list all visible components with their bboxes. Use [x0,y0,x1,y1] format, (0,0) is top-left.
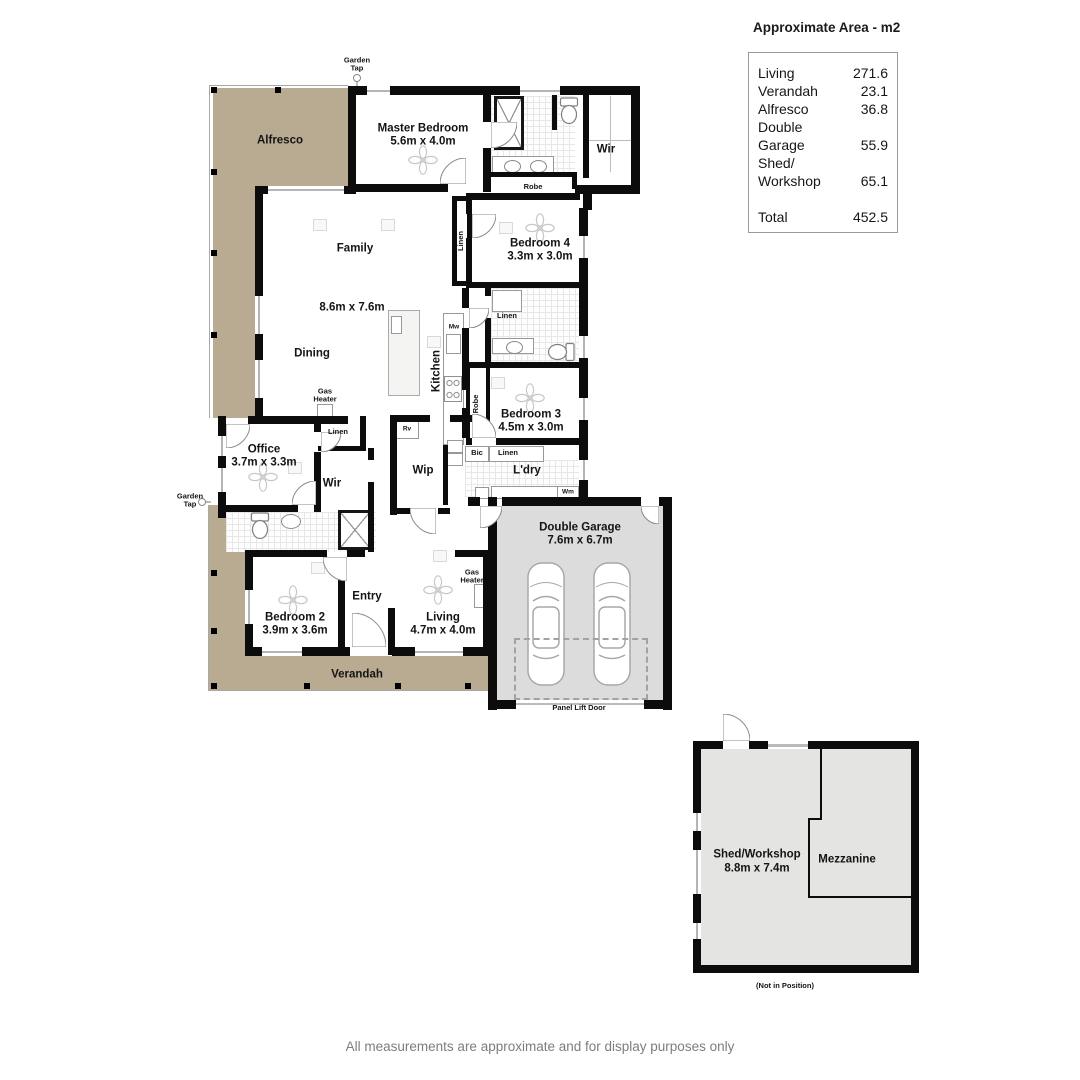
window-line [696,923,698,939]
window-line [258,296,260,334]
window-line [221,468,223,492]
wall [552,94,557,130]
patio-edge-line [209,85,348,86]
living-name-label: Living [426,612,460,625]
verandah-post [211,169,217,175]
bedroom2-dims-label: 3.9m x 3.6m [262,625,327,638]
garden-tap-left-label: Garden Tap [171,493,209,510]
master-dims-label: 5.6m x 4.0m [390,136,455,149]
wall [483,148,491,192]
verandah-post [211,628,217,634]
door-arc-icon [472,414,496,438]
vent-icon [499,222,513,234]
robe-shelf-line [610,96,611,172]
alfresco-label: Alfresco [257,135,303,148]
bedroom3-name-label: Bedroom 3 [501,409,561,422]
verandah-post [304,683,310,689]
wall [631,86,640,192]
open-dims-label: 8.6m x 7.6m [319,302,384,315]
window [255,360,263,398]
door-arc-icon [292,481,316,505]
wall [218,416,226,518]
mezzanine-line [808,896,912,898]
patio-edge-line [208,690,491,691]
window-line [415,651,463,653]
vent-icon [433,550,447,562]
window-line [258,360,260,398]
toilet-icon [249,512,271,540]
office-dims-label: 3.7m x 3.3m [231,457,296,470]
vent-icon [381,219,395,231]
verandah-post [395,683,401,689]
window [693,850,701,894]
verandah-post [211,87,217,93]
door-arc-icon [323,557,347,581]
family-label: Family [337,243,373,256]
wall [572,172,577,189]
window [367,86,390,95]
disclaimer-text: All measurements are approximate and for… [0,1039,1080,1054]
window [218,436,226,456]
wall [911,741,919,973]
robe-bed3-label: Robe [472,395,480,414]
dining-label: Dining [294,348,330,361]
wall [496,438,583,445]
window-line [583,398,585,420]
wall [443,445,448,505]
wall [390,415,397,515]
wall [314,424,321,432]
wall [462,288,469,308]
door-arc-icon [491,122,517,148]
vent-icon [313,219,327,231]
wall [368,448,374,460]
ceiling-fan-icon [408,145,438,175]
cooktop-icon [444,376,462,402]
wall [360,416,366,448]
garden-tap-top-label: Garden Tap [338,57,376,74]
shed-name-label: Shed/Workshop [713,849,800,862]
entry-label: Entry [352,591,381,604]
window [415,647,463,656]
page: Approximate Area - m2 Living271.6Veranda… [0,0,1080,1080]
wall [489,172,575,177]
shed-dims-label: 8.8m x 7.4m [724,863,789,876]
garage-dims-label: 7.6m x 6.7m [547,535,612,548]
window-line [696,850,698,894]
wall [462,328,469,390]
door-arc-icon [226,424,250,448]
wall [348,184,448,192]
wall [390,508,410,514]
garden-tap-icon [353,74,361,82]
floor-plan: AlfrescoMaster Bedroom5.6m x 4.0mWirRobe… [0,0,1080,1080]
wall [749,741,768,749]
window [218,468,226,492]
wir-ensuite-label: Wir [597,144,615,157]
wall [466,193,580,200]
verandah-post [211,332,217,338]
wip-label: Wip [413,465,434,478]
wall [467,198,472,286]
office-name-label: Office [248,444,281,457]
wall [452,196,472,201]
kitchen-label: Kitchen [431,350,444,392]
wall [663,497,672,710]
window-line [696,813,698,831]
linen-office-label: Linen [328,428,348,436]
wall [485,288,491,296]
fridge-box [447,453,463,466]
bedroom3-dims-label: 4.5m x 3.0m [498,422,563,435]
verandah-post [211,250,217,256]
verandah-post [465,683,471,689]
mezzanine-line [820,749,822,820]
wall [462,408,469,438]
not-in-position-label: (Not in Position) [756,982,814,990]
window [262,647,302,656]
fridge-box [447,440,463,453]
toilet-icon [547,341,575,363]
window [693,813,701,831]
window [579,336,588,358]
island-sink [391,316,402,334]
window-line [268,189,344,191]
window-line [262,651,302,653]
door-arc-icon [352,613,386,647]
gas-heater-family-label: Gas Heater [308,388,342,405]
vent-icon [491,377,505,389]
ceiling-fan-icon [423,575,453,605]
wall [368,482,374,552]
wall [248,416,348,424]
robe-master-label: Robe [524,183,543,191]
door-arc-icon [723,714,750,741]
microwave-box [446,334,461,354]
window [268,186,344,194]
wall [488,497,497,710]
window-line [583,236,585,258]
window [579,398,588,420]
door-arc-icon [641,506,659,524]
wall [450,415,472,422]
bedroom4-name-label: Bedroom 4 [510,238,570,251]
toilet-icon [558,97,580,125]
window-line [248,590,250,624]
window [579,236,588,258]
verandah-post [211,570,217,576]
garage-door-zone [514,638,648,700]
wall [488,700,516,709]
wall [466,438,472,445]
window-line [221,436,223,456]
linen-bath2-label: Linen [497,312,517,320]
wall [348,86,640,95]
wall [452,281,472,286]
window [579,460,588,480]
wall [347,550,365,557]
window [255,296,263,334]
basin-icon [281,514,301,529]
basin-icon [506,341,523,354]
door-arc-icon [472,214,496,238]
vent-icon [427,336,441,348]
patio-edge-line [208,505,209,691]
ceiling-fan-icon [278,585,308,615]
window-line [520,90,560,92]
verandah-post [275,87,281,93]
wall [575,185,640,194]
gas-heater-living-label: Gas Heater [455,569,489,586]
linen-hall-label: Linen [457,231,465,251]
wall [644,700,672,709]
window-line [583,460,585,480]
bedroom4-dims-label: 3.3m x 3.0m [507,251,572,264]
door-arc-icon [469,308,489,328]
wall [502,497,641,506]
robe-shelf-line [589,140,632,141]
window [693,923,701,939]
garage-name-label: Double Garage [539,522,621,535]
door-arc-icon [410,508,436,534]
wall [466,282,580,288]
window-line [367,90,390,92]
linen-ldry-label: Linen [498,449,518,457]
ldry-label: L'dry [513,465,541,478]
verandah-post [211,683,217,689]
mezzanine-line [808,818,822,820]
mezzanine-label: Mezzanine [818,854,876,867]
wall [348,86,356,194]
window [245,590,253,624]
wall [483,94,491,122]
bic-label: Bic [471,449,483,457]
shower [338,510,372,550]
shed-window-line [768,744,808,747]
wall [218,505,298,512]
patio-edge-line [209,85,210,418]
window [520,86,560,95]
wall [693,965,919,973]
mw-label: Mw [449,323,459,330]
master-name-label: Master Bedroom [378,123,469,136]
bedroom2-name-label: Bedroom 2 [265,612,325,625]
wall [468,497,480,506]
rv-label: Rv [403,425,411,432]
wm-label: Wm [562,488,574,495]
wall [808,741,919,749]
wall [245,550,327,557]
mezzanine-line [808,818,810,898]
door-arc-icon [440,158,466,184]
wall [438,508,450,514]
wir-office-label: Wir [323,478,341,491]
verandah-label: Verandah [331,669,383,682]
panel-lift-door-label: Panel Lift Door [552,704,605,712]
linen-shelf [492,290,522,312]
wall [583,94,589,178]
living-dims-label: 4.7m x 4.0m [410,625,475,638]
door-arc-icon [480,506,502,528]
window-line [583,336,585,358]
